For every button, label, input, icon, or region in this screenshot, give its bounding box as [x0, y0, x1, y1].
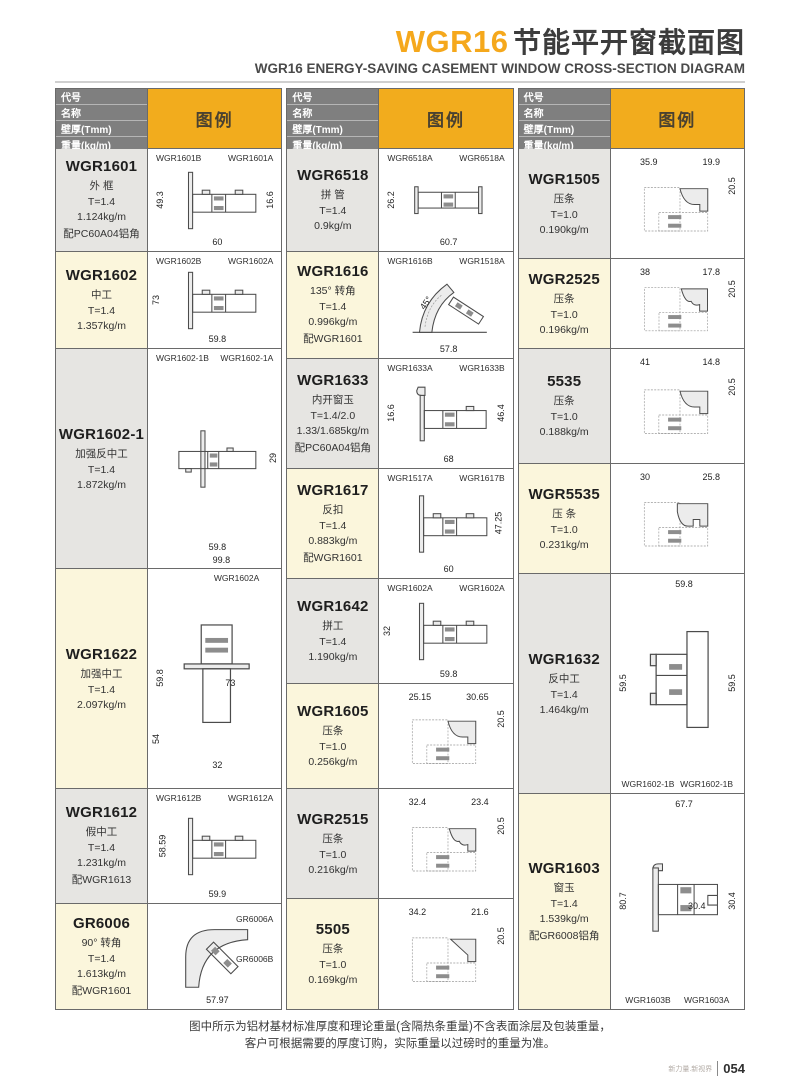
profile-diagram: GR6006AGR6006B 57.97	[148, 904, 281, 1009]
profile-name: 压条	[554, 393, 575, 408]
dimension-label: 30.4	[727, 892, 737, 910]
dimension-label: 17.8	[702, 267, 720, 277]
profile-label-cell: WGR1601 外 框 T=1.4 1.124kg/m 配PC60A04铝角	[56, 149, 148, 251]
header-cell-thickness: 壁厚(Tmm)	[287, 121, 378, 137]
profile-row: WGR2525 压条 T=1.0 0.196kg/m 3817.820.5	[519, 259, 744, 349]
profile-thickness: T=1.0	[551, 524, 578, 536]
profile-weight: 0.216kg/m	[308, 864, 357, 876]
dimension-label: 20.5	[727, 177, 737, 195]
profile-row: WGR1622 加强中工 T=1.4 2.097kg/m WGR1602AWGR…	[56, 569, 281, 789]
dimension-label: 32	[212, 760, 222, 770]
part-label: WGR1602A	[459, 583, 504, 593]
title-series-code: WGR16	[396, 24, 509, 59]
part-labels: WGR1603BWGR1603A	[619, 995, 736, 1005]
profile-name: 压条	[322, 831, 343, 846]
part-labels: WGR1602BWGR1602A	[156, 256, 273, 266]
profile-row: WGR1632 反中工 T=1.4 1.464kg/m WGR1602-1BWG…	[519, 574, 744, 794]
dimension-label: 80.7	[617, 892, 627, 910]
brand-slogan: 新力量.新视界	[668, 1064, 712, 1074]
profile-code: 5535	[547, 373, 581, 390]
part-label: WGR1616B	[387, 256, 432, 266]
profile-name: 压条	[322, 723, 343, 738]
profile-row: WGR1616 135° 转角 T=1.4 0.996kg/m 配WGR1601…	[287, 252, 512, 359]
profile-code: WGR5535	[528, 486, 599, 503]
part-label: WGR1617B	[459, 473, 504, 483]
part-label: WGR1602-1B	[680, 779, 733, 789]
profile-label-cell: WGR2525 压条 T=1.0 0.196kg/m	[519, 259, 611, 348]
profile-name: 压条	[554, 191, 575, 206]
profile-weight: 1.613kg/m	[77, 968, 126, 980]
profile-thickness: T=1.4/2.0	[311, 410, 356, 422]
profile-thickness: T=1.4	[319, 301, 346, 313]
profile-label-cell: WGR1605 压条 T=1.0 0.256kg/m	[287, 684, 379, 788]
dimension-label: 57.97	[206, 995, 229, 1005]
dimension-label: 67.7	[675, 799, 693, 809]
part-label: WGR6518A	[387, 153, 432, 163]
profile-column: 代号 名称 壁厚(Tmm) 重量(kg/m) 图例 WGR1601 外 框 T=…	[55, 88, 282, 1010]
profile-diagram: 4114.820.5	[611, 349, 744, 463]
profile-weight: 0.231kg/m	[540, 539, 589, 551]
profile-weight: 0.188kg/m	[540, 426, 589, 438]
profile-name: 反中工	[548, 671, 580, 686]
part-labels: WGR1601BWGR1601A	[156, 153, 273, 163]
profile-row: 5535 压条 T=1.0 0.188kg/m 4114.820.5	[519, 349, 744, 464]
header-label-stack: 代号 名称 壁厚(Tmm) 重量(kg/m)	[287, 89, 379, 148]
page-footer-bar: 新力量.新视界 054	[55, 1061, 745, 1076]
cross-section-sketch	[407, 811, 486, 890]
part-labels: WGR1602AWGR1622B	[156, 573, 273, 784]
profile-diagram: WGR1602AWGR1602A 3259.8	[379, 579, 512, 683]
part-label: WGR1602A	[228, 256, 273, 266]
profile-label-cell: WGR1642 拼工 T=1.4 1.190kg/m	[287, 579, 379, 683]
profile-row: WGR1602-1 加强反中工 T=1.4 1.872kg/m WGR1602-…	[56, 349, 281, 569]
dimension-label: 60	[444, 564, 454, 574]
profile-diagram: 35.919.920.5	[611, 149, 744, 258]
profile-diagram: 25.1530.6520.5	[379, 684, 512, 788]
profile-code: WGR1616	[297, 263, 368, 280]
dimension-label: 20.5	[727, 379, 737, 397]
column-header: 代号 名称 壁厚(Tmm) 重量(kg/m) 图例	[287, 89, 512, 149]
dimension-label: 59.8	[209, 334, 227, 344]
dimension-label: 19.9	[702, 157, 720, 167]
profile-table: 代号 名称 壁厚(Tmm) 重量(kg/m) 图例 WGR1601 外 框 T=…	[55, 88, 745, 1010]
profile-row: WGR6518 拼 管 T=1.4 0.9kg/m WGR6518AWGR651…	[287, 149, 512, 252]
profile-row: WGR1601 外 框 T=1.4 1.124kg/m 配PC60A04铝角 W…	[56, 149, 281, 252]
profile-code: WGR2525	[528, 271, 599, 288]
profile-name: 假中工	[86, 824, 118, 839]
profile-thickness: T=1.4	[319, 205, 346, 217]
dimension-label: 59.8	[675, 579, 693, 589]
cross-section-sketch	[635, 808, 724, 987]
dimension-label: 30	[640, 472, 650, 482]
profile-diagram: WGR1517AWGR1617B 47.2560	[379, 469, 512, 578]
header-label-stack: 代号 名称 壁厚(Tmm) 重量(kg/m)	[56, 89, 148, 148]
profile-label-cell: WGR2515 压条 T=1.0 0.216kg/m	[287, 789, 379, 898]
profile-code: WGR1632	[528, 651, 599, 668]
part-label: WGR1601A	[228, 153, 273, 163]
title-chinese: 节能平开窗截面图	[513, 27, 745, 58]
profile-code: WGR1602-1	[59, 426, 144, 443]
part-label: WGR1517A	[387, 473, 432, 483]
profile-thickness: T=1.4	[88, 196, 115, 208]
dimension-label: 32	[382, 626, 392, 636]
profile-accessory: 配GR6008铝角	[529, 928, 600, 943]
profile-weight: 1.231kg/m	[77, 857, 126, 869]
profile-diagram: WGR1601BWGR1601A 49.316.660	[148, 149, 281, 251]
profile-name: 拼 管	[321, 187, 345, 202]
profile-diagram: WGR1602-1BWGR1602-1B 59.859.559.5	[611, 574, 744, 793]
profile-thickness: T=1.0	[551, 411, 578, 423]
profile-thickness: T=1.0	[319, 959, 346, 971]
profile-row: WGR1633 内开窗玉 T=1.4/2.0 1.33/1.685kg/m 配P…	[287, 359, 512, 469]
dimension-label: 58.59	[157, 834, 167, 857]
profile-diagram: 3817.820.5	[611, 259, 744, 348]
profile-code: WGR1612	[66, 804, 137, 821]
profile-thickness: T=1.4	[88, 842, 115, 854]
profile-weight: 1.357kg/m	[77, 320, 126, 332]
profile-label-cell: WGR1622 加强中工 T=1.4 2.097kg/m	[56, 569, 148, 788]
cross-section-sketch	[639, 371, 718, 455]
dimension-label: 30.4	[688, 901, 706, 911]
profile-weight: 1.124kg/m	[77, 211, 126, 223]
header-cell-code: 代号	[519, 89, 610, 105]
profile-row: WGR1605 压条 T=1.0 0.256kg/m 25.1530.6520.…	[287, 684, 512, 789]
profile-row: WGR2515 压条 T=1.0 0.216kg/m 32.423.420.5	[287, 789, 512, 899]
profile-diagram: WGR1633AWGR1633B 16.646.468	[379, 359, 512, 468]
dimension-label: 14.8	[702, 357, 720, 367]
profile-label-cell: WGR1632 反中工 T=1.4 1.464kg/m	[519, 574, 611, 793]
dimension-label: 47.25	[493, 512, 503, 535]
profile-weight: 0.996kg/m	[308, 316, 357, 328]
cross-section-sketch	[172, 366, 261, 552]
profile-thickness: T=1.0	[319, 741, 346, 753]
profile-label-cell: WGR1505 压条 T=1.0 0.190kg/m	[519, 149, 611, 258]
profile-thickness: T=1.0	[551, 209, 578, 221]
cross-section-sketch	[403, 376, 492, 452]
profile-label-cell: 5535 压条 T=1.0 0.188kg/m	[519, 349, 611, 463]
cross-section-sketch	[407, 921, 486, 1001]
profile-name: 外 框	[90, 178, 114, 193]
profile-weight: 1.190kg/m	[308, 651, 357, 663]
dimension-label: 59.5	[617, 674, 627, 692]
footer-note: 图中所示为铝材基材标准厚度和理论重量(含隔热条重量)不含表面涂层及包装重量， 客…	[55, 1019, 745, 1055]
catalog-page: WGR16 节能平开窗截面图 WGR16 ENERGY-SAVING CASEM…	[0, 0, 800, 1076]
profile-label-cell: WGR1612 假中工 T=1.4 1.231kg/m 配WGR1613	[56, 789, 148, 903]
profile-code: WGR1505	[528, 171, 599, 188]
part-label: WGR1602B	[156, 256, 201, 266]
profile-weight: 0.256kg/m	[308, 756, 357, 768]
profile-code: WGR1601	[66, 158, 137, 175]
profile-diagram: WGR6518AWGR6518A 26.260.7	[379, 149, 512, 251]
part-label: WGR1603A	[684, 995, 729, 1005]
profile-name: 90° 转角	[82, 935, 122, 950]
cross-section-sketch	[403, 486, 492, 562]
dimension-label: 23.4	[471, 797, 489, 807]
dimension-label: 34.2	[409, 907, 427, 917]
profile-weight: 1.464kg/m	[540, 704, 589, 716]
profile-code: WGR1605	[297, 703, 368, 720]
profile-row: 5505 压条 T=1.0 0.169kg/m 34.221.620.5	[287, 899, 512, 1009]
dimension-label: 59.8	[209, 542, 227, 552]
dimension-label: 26.2	[386, 191, 396, 209]
dimension-label: 60	[212, 237, 222, 247]
profile-thickness: T=1.4	[319, 636, 346, 648]
cross-section-sketch	[172, 269, 261, 332]
dimension-label: 38	[640, 267, 650, 277]
profile-weight: 1.539kg/m	[540, 913, 589, 925]
header-cell-name: 名称	[56, 105, 147, 121]
profile-name: 中工	[91, 287, 112, 302]
profile-row: WGR1602 中工 T=1.4 1.357kg/m WGR1602BWGR16…	[56, 252, 281, 349]
profile-diagram: 3025.8	[611, 464, 744, 573]
part-label: WGR6518A	[459, 153, 504, 163]
dimension-label: 25.8	[702, 472, 720, 482]
profile-diagram: WGR1602BWGR1602A 7359.8	[148, 252, 281, 348]
header-cell-thickness: 壁厚(Tmm)	[519, 121, 610, 137]
part-label: WGR1603B	[625, 995, 670, 1005]
profile-label-cell: WGR5535 压 条 T=1.0 0.231kg/m	[519, 464, 611, 573]
profile-code: WGR2515	[297, 811, 368, 828]
profile-thickness: T=1.4	[551, 689, 578, 701]
column-header: 代号 名称 壁厚(Tmm) 重量(kg/m) 图例	[519, 89, 744, 149]
profile-code: WGR1617	[297, 482, 368, 499]
dimension-label: 29	[268, 453, 278, 463]
profile-name: 压 条	[552, 506, 576, 521]
footer-line-1: 图中所示为铝材基材标准厚度和理论重量(含隔热条重量)不含表面涂层及包装重量，	[55, 1019, 745, 1037]
part-labels: WGR1602-1BWGR1602-1B	[619, 779, 736, 789]
dimension-label: 20.5	[496, 927, 506, 945]
dimension-label: 16.6	[265, 191, 275, 209]
profile-label-cell: WGR1616 135° 转角 T=1.4 0.996kg/m 配WGR1601	[287, 252, 379, 358]
cross-section-sketch	[172, 166, 261, 235]
header-cell-code: 代号	[287, 89, 378, 105]
cross-section-sketch	[639, 281, 718, 340]
dimension-label: 20.5	[727, 280, 737, 298]
footer-line-2: 客户可根据需要的厚度订购，实际重量以过磅时的重量为准。	[55, 1036, 745, 1054]
dimension-label: 46.4	[496, 404, 506, 422]
dimension-label: 30.65	[466, 692, 489, 702]
profile-name: 压条	[322, 941, 343, 956]
dimension-label: 73	[225, 678, 235, 688]
part-label: WGR1602A	[387, 583, 432, 593]
profile-accessory: 配WGR1601	[72, 983, 132, 998]
dimension-label: 32.4	[409, 797, 427, 807]
profile-column: 代号 名称 壁厚(Tmm) 重量(kg/m) 图例 WGR6518 拼 管 T=…	[286, 88, 513, 1010]
profile-name: 内开窗玉	[312, 392, 354, 407]
dimension-label: 54	[151, 734, 161, 744]
dimension-label: 99.8	[213, 555, 231, 565]
dimension-label: 25.15	[409, 692, 432, 702]
dimension-label: 16.6	[386, 404, 396, 422]
profile-code: 5505	[316, 921, 350, 938]
profile-name: 加强中工	[81, 666, 123, 681]
profile-label-cell: WGR6518 拼 管 T=1.4 0.9kg/m	[287, 149, 379, 251]
profile-code: WGR1603	[528, 860, 599, 877]
profile-code: WGR1642	[297, 598, 368, 615]
profile-name: 窗玉	[554, 880, 575, 895]
profile-row: WGR1642 拼工 T=1.4 1.190kg/m WGR1602AWGR16…	[287, 579, 512, 684]
profile-diagram: WGR1603BWGR1603A 67.780.730.430.4	[611, 794, 744, 1009]
legend-header: 图例	[611, 89, 744, 148]
part-label: WGR1612B	[156, 793, 201, 803]
dimension-label: 68	[444, 454, 454, 464]
profile-diagram: WGR1602-1BWGR1602-1A 2959.899.8	[148, 349, 281, 568]
dimension-label: 57.8	[440, 344, 458, 354]
profile-label-cell: WGR1602-1 加强反中工 T=1.4 1.872kg/m	[56, 349, 148, 568]
cross-section-sketch	[639, 486, 718, 565]
profile-name: 135° 转角	[310, 283, 356, 298]
dimension-label: 35.9	[640, 157, 658, 167]
profile-row: WGR1612 假中工 T=1.4 1.231kg/m 配WGR1613 WGR…	[56, 789, 281, 904]
dimension-label: 59.9	[209, 889, 227, 899]
profile-name: 反扣	[322, 502, 343, 517]
profile-weight: 1.33/1.685kg/m	[297, 425, 369, 437]
part-labels: GR6006AGR6006B	[156, 914, 273, 964]
profile-label-cell: WGR1633 内开窗玉 T=1.4/2.0 1.33/1.685kg/m 配P…	[287, 359, 379, 468]
profile-label-cell: GR6006 90° 转角 T=1.4 1.613kg/m 配WGR1601	[56, 904, 148, 1009]
dimension-label: 49.3	[155, 191, 165, 209]
profile-code: WGR1622	[66, 646, 137, 663]
profile-weight: 0.169kg/m	[308, 974, 357, 986]
profile-label-cell: WGR1617 反扣 T=1.4 0.883kg/m 配WGR1601	[287, 469, 379, 578]
profile-name: 加强反中工	[75, 446, 128, 461]
part-labels: WGR1612BWGR1612A	[156, 793, 273, 803]
profile-thickness: T=1.4	[551, 898, 578, 910]
part-labels: WGR1517AWGR1617B	[387, 473, 504, 483]
profile-thickness: T=1.4	[88, 464, 115, 476]
profile-row: WGR1603 窗玉 T=1.4 1.539kg/m 配GR6008铝角 WGR…	[519, 794, 744, 1009]
page-subtitle: WGR16 ENERGY-SAVING CASEMENT WINDOW CROS…	[55, 61, 745, 76]
profile-accessory: 配WGR1601	[303, 331, 363, 346]
cross-section-sketch	[407, 706, 486, 780]
profile-code: GR6006	[73, 915, 130, 932]
column-header: 代号 名称 壁厚(Tmm) 重量(kg/m) 图例	[56, 89, 281, 149]
cross-section-sketch	[639, 171, 718, 250]
dimension-label: 59.8	[440, 669, 458, 679]
profile-row: WGR1617 反扣 T=1.4 0.883kg/m 配WGR1601 WGR1…	[287, 469, 512, 579]
profile-accessory: 配WGR1601	[303, 550, 363, 565]
profile-row: GR6006 90° 转角 T=1.4 1.613kg/m 配WGR1601 G…	[56, 904, 281, 1009]
profile-weight: 2.097kg/m	[77, 699, 126, 711]
profile-diagram: WGR1602AWGR1622B 59.8547332	[148, 569, 281, 788]
profile-diagram: WGR1616BWGR1518A 45°57.8	[379, 252, 512, 358]
dimension-label: 21.6	[471, 907, 489, 917]
part-label: WGR1602-1A	[220, 353, 273, 363]
cross-section-sketch	[403, 166, 492, 235]
part-labels: WGR1602AWGR1602A	[387, 583, 504, 593]
profile-accessory: 配PC60A04铝角	[295, 440, 371, 455]
profile-label-cell: 5505 压条 T=1.0 0.169kg/m	[287, 899, 379, 1009]
profile-code: WGR1602	[66, 267, 137, 284]
part-labels: WGR6518AWGR6518A	[387, 153, 504, 163]
part-label: WGR1602A	[214, 573, 259, 583]
part-label: WGR1602-1B	[156, 353, 209, 363]
profile-weight: 0.883kg/m	[308, 535, 357, 547]
profile-weight: 0.190kg/m	[540, 224, 589, 236]
profile-diagram: WGR1612BWGR1612A 58.5959.9	[148, 789, 281, 903]
header-cell-name: 名称	[519, 105, 610, 121]
cross-section-sketch	[172, 806, 261, 887]
dimension-label: 41	[640, 357, 650, 367]
part-label: WGR1602-1B	[622, 779, 675, 789]
profile-weight: 0.9kg/m	[314, 220, 351, 232]
profile-code: WGR6518	[297, 167, 368, 184]
profile-thickness: T=1.4	[319, 520, 346, 532]
header-label-stack: 代号 名称 壁厚(Tmm) 重量(kg/m)	[519, 89, 611, 148]
profile-thickness: T=1.0	[551, 309, 578, 321]
part-label: WGR1612A	[228, 793, 273, 803]
part-label: WGR1633A	[387, 363, 432, 373]
profile-diagram: 34.221.620.5	[379, 899, 512, 1009]
profile-thickness: T=1.0	[319, 849, 346, 861]
profile-name: 拼工	[322, 618, 343, 633]
part-labels: WGR1633AWGR1633B	[387, 363, 504, 373]
profile-code: WGR1633	[297, 372, 368, 389]
dimension-label: 60.7	[440, 237, 458, 247]
part-labels: WGR1602-1BWGR1602-1A	[156, 353, 273, 363]
profile-weight: 0.196kg/m	[540, 324, 589, 336]
dimension-label: 20.5	[496, 710, 506, 728]
cross-section-sketch	[403, 596, 492, 667]
dimension-label: 73	[151, 295, 161, 305]
profile-accessory: 配WGR1613	[72, 872, 132, 887]
part-label: WGR1601B	[156, 153, 201, 163]
cross-section-sketch	[635, 588, 724, 771]
profile-accessory: 配PC60A04铝角	[63, 226, 139, 241]
part-label: GR6006A	[236, 914, 273, 924]
dimension-label: 20.5	[496, 817, 506, 835]
profile-name: 压条	[554, 291, 575, 306]
header-cell-name: 名称	[287, 105, 378, 121]
part-labels: WGR1616BWGR1518A	[387, 256, 504, 266]
profile-thickness: T=1.4	[88, 684, 115, 696]
profile-thickness: T=1.4	[88, 305, 115, 317]
title-divider	[55, 81, 745, 83]
header-cell-code: 代号	[56, 89, 147, 105]
profile-diagram: 32.423.420.5	[379, 789, 512, 898]
profile-label-cell: WGR1603 窗玉 T=1.4 1.539kg/m 配GR6008铝角	[519, 794, 611, 1009]
header-cell-thickness: 壁厚(Tmm)	[56, 121, 147, 137]
part-label: WGR1518A	[459, 256, 504, 266]
legend-header: 图例	[148, 89, 281, 148]
dimension-label: 59.8	[155, 669, 165, 687]
part-label: WGR1633B	[459, 363, 504, 373]
part-label: GR6006B	[236, 954, 273, 964]
profile-weight: 1.872kg/m	[77, 479, 126, 491]
profile-column: 代号 名称 壁厚(Tmm) 重量(kg/m) 图例 WGR1505 压条 T=1…	[518, 88, 745, 1010]
profile-thickness: T=1.4	[88, 953, 115, 965]
profile-row: WGR5535 压 条 T=1.0 0.231kg/m 3025.8	[519, 464, 744, 574]
page-number: 054	[717, 1061, 745, 1076]
legend-header: 图例	[379, 89, 512, 148]
dimension-label: 59.5	[727, 674, 737, 692]
profile-label-cell: WGR1602 中工 T=1.4 1.357kg/m	[56, 252, 148, 348]
profile-row: WGR1505 压条 T=1.0 0.190kg/m 35.919.920.5	[519, 149, 744, 259]
page-title: WGR16 节能平开窗截面图	[55, 26, 745, 59]
